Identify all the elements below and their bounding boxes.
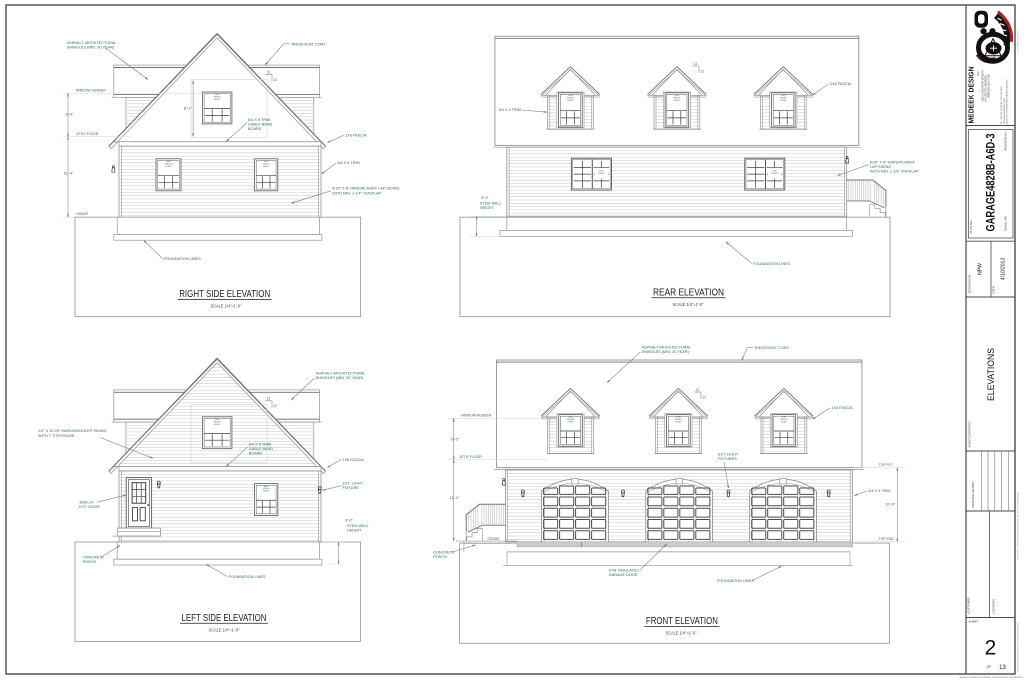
svg-text:GABLE BAND: GABLE BAND bbox=[249, 447, 274, 451]
svg-text:CONCRETE: CONCRETE bbox=[433, 551, 455, 555]
svg-text:FOUNDATION LINES: FOUNDATION LINES bbox=[229, 575, 266, 579]
svg-text:SHEET CONTENTS:: SHEET CONTENTS: bbox=[968, 421, 972, 447]
svg-text:6'-0": 6'-0" bbox=[451, 437, 460, 442]
svg-text:5/4 X 5 TRIM: 5/4 X 5 TRIM bbox=[249, 443, 271, 447]
svg-text:FOUNDATION LINES: FOUNDATION LINES bbox=[164, 257, 201, 261]
svg-text:HUNG: HUNG bbox=[780, 100, 786, 102]
svg-text:FRONT ELEVATION: FRONT ELEVATION bbox=[646, 616, 718, 627]
svg-text:HUNG: HUNG bbox=[674, 100, 680, 102]
svg-text:FIXTURE: FIXTURE bbox=[343, 486, 360, 490]
svg-text:PORCH: PORCH bbox=[83, 560, 97, 564]
svg-text:3'-0": 3'-0" bbox=[345, 517, 354, 522]
svg-text:6'-0": 6'-0" bbox=[66, 111, 75, 116]
svg-text:8'-1": 8'-1" bbox=[184, 105, 193, 110]
svg-text:FOUNDATION LINES: FOUNDATION LINES bbox=[753, 262, 790, 266]
svg-text:SCALE 1/4"=1'-0": SCALE 1/4"=1'-0" bbox=[209, 627, 240, 632]
svg-text:PH: 425-741-5555 FAX: 425-741: PH: 425-741-5555 FAX: 425-741-5556 bbox=[1000, 86, 1003, 124]
svg-text:BOARD: BOARD bbox=[248, 127, 262, 131]
svg-text:2: 2 bbox=[985, 637, 997, 660]
svg-text:EXT. LIGHT: EXT. LIGHT bbox=[718, 453, 739, 457]
svg-text:12: 12 bbox=[273, 404, 277, 408]
svg-text:HUNG: HUNG bbox=[567, 100, 573, 102]
svg-text:SCALE: NR: SCALE: NR bbox=[1004, 216, 1008, 231]
svg-text:SCALE 1/4"=1'-0": SCALE 1/4"=1'-0" bbox=[211, 304, 242, 309]
svg-text:FIXTURES: FIXTURES bbox=[718, 457, 737, 461]
svg-text:STEM WALL: STEM WALL bbox=[347, 524, 369, 528]
svg-text:GARAGE DOOR: GARAGE DOOR bbox=[609, 573, 638, 577]
svg-text:WWW.MEDEEK.COM: WWW.MEDEEK.COM bbox=[988, 74, 991, 98]
svg-text:HEIGHT: HEIGHT bbox=[347, 528, 362, 532]
svg-text:EXT. LIGHT: EXT. LIGHT bbox=[343, 481, 364, 485]
svg-text:3068 LH: 3068 LH bbox=[79, 501, 94, 505]
svg-text:RIDGEVENT CONT.: RIDGEVENT CONT. bbox=[292, 42, 327, 46]
svg-text:SHINGLES (MIN. 30 YEAR): SHINGLES (MIN. 30 YEAR) bbox=[642, 350, 690, 354]
svg-text:3'-0": 3'-0" bbox=[481, 195, 490, 200]
svg-text:REVISION: A-1: REVISION: A-1 bbox=[1004, 131, 1008, 151]
svg-text:RIDGEVENT CONT.: RIDGEVENT CONT. bbox=[755, 346, 790, 350]
svg-text:HUNG: HUNG bbox=[263, 166, 269, 168]
svg-text:SHEET: SHEET bbox=[969, 620, 979, 624]
svg-text:COPYRIGHT 2013 MEDEEK DESIGN I: COPYRIGHT 2013 MEDEEK DESIGN INC. ALL RI… bbox=[1016, 492, 1019, 560]
svg-text:SLIDER: SLIDER bbox=[598, 173, 605, 175]
svg-text:12: 12 bbox=[273, 78, 277, 82]
svg-text:1X6 FASCIA: 1X6 FASCIA bbox=[831, 406, 853, 410]
svg-text:9'X8' INSULATED: 9'X8' INSULATED bbox=[609, 569, 640, 573]
svg-text:12: 12 bbox=[267, 397, 271, 401]
svg-text:SLIDER: SLIDER bbox=[771, 173, 778, 175]
svg-text:11'-4": 11'-4" bbox=[449, 495, 459, 500]
svg-text:GABLE BAND: GABLE BAND bbox=[248, 123, 273, 127]
svg-text:ASPHALT ARCHITECTURAL: ASPHALT ARCHITECTURAL bbox=[67, 41, 117, 45]
svg-text:ASPHALT ARCHITECTURAL: ASPHALT ARCHITECTURAL bbox=[316, 372, 366, 376]
svg-text:1X6 FASCIA: 1X6 FASCIA bbox=[830, 82, 852, 86]
svg-text:5/4 X 4 TRIM: 5/4 X 4 TRIM bbox=[337, 161, 359, 165]
svg-text:CONCRETE: CONCRETE bbox=[83, 556, 105, 560]
svg-text:12: 12 bbox=[702, 395, 706, 399]
svg-text:LOCATION:: LOCATION: bbox=[992, 598, 996, 613]
svg-text:REVISION HISTORY:: REVISION HISTORY: bbox=[971, 480, 975, 507]
svg-text:DESIGNED BY:: DESIGNED BY: bbox=[968, 274, 972, 294]
svg-text:HUNG: HUNG bbox=[214, 424, 220, 426]
svg-text:DATE:: DATE: bbox=[992, 285, 996, 293]
svg-text:ATTIC FLOOR: ATTIC FLOOR bbox=[76, 132, 99, 136]
svg-text:11'-4": 11'-4" bbox=[64, 170, 74, 175]
svg-text:PORCH: PORCH bbox=[433, 555, 447, 559]
svg-text:LEFT SIDE ELEVATION: LEFT SIDE ELEVATION bbox=[182, 613, 267, 624]
svg-text:HUNG: HUNG bbox=[263, 491, 269, 493]
svg-text:5/4 X 5 TRIM: 5/4 X 5 TRIM bbox=[248, 118, 270, 122]
svg-text:TOP PLT.: TOP PLT. bbox=[879, 463, 893, 467]
svg-text:MEDEEK DESIGN COPYRIGHT 201: MEDEEK DESIGN COPYRIGHT 2013 ALL RIGHTS … bbox=[959, 676, 1022, 679]
svg-text:WINDOW HEADER: WINDOW HEADER bbox=[76, 88, 107, 92]
svg-text:TOP FND.: TOP FND. bbox=[879, 537, 895, 541]
svg-text:ALL RIGHTS RESERVED MEDEEK DES: ALL RIGHTS RESERVED MEDEEK DESIGN bbox=[1006, 79, 1009, 124]
svg-text:12: 12 bbox=[267, 70, 271, 74]
svg-text:HUNG: HUNG bbox=[214, 99, 220, 101]
svg-text:ELEVATIONS: ELEVATIONS bbox=[986, 348, 996, 401]
svg-text:WINDOW HEADER: WINDOW HEADER bbox=[461, 414, 492, 418]
svg-text:GRADE: GRADE bbox=[488, 537, 501, 541]
svg-text:UNAUTHORIZED REPRODUCTION PROH: UNAUTHORIZED REPRODUCTION PROHIBITED bbox=[1016, 622, 1019, 672]
svg-text:HUNG: HUNG bbox=[166, 166, 172, 168]
svg-text:ASPHALT ARCHITECTURAL: ASPHALT ARCHITECTURAL bbox=[642, 345, 692, 349]
svg-text:STEM WALL: STEM WALL bbox=[480, 202, 502, 206]
svg-text:RIGHT SIDE ELEVATION: RIGHT SIDE ELEVATION bbox=[179, 289, 270, 300]
svg-text:GARAGE4828B-A6D-3: GARAGE4828B-A6D-3 bbox=[984, 133, 998, 231]
svg-text:10'-0": 10'-0" bbox=[885, 502, 896, 507]
svg-text:REAR ELEVATION: REAR ELEVATION bbox=[653, 287, 724, 298]
svg-text:12: 12 bbox=[694, 62, 698, 66]
svg-text:5/4 X 4 TRIM: 5/4 X 4 TRIM bbox=[499, 108, 521, 112]
svg-text:WITH MIN. 1-1/4" OVERLAP: WITH MIN. 1-1/4" OVERLAP bbox=[870, 170, 919, 174]
svg-text:HUNG: HUNG bbox=[675, 422, 681, 424]
svg-text:5/16" X 6" HARDIPLANK® LAP SID: 5/16" X 6" HARDIPLANK® LAP SIDING bbox=[332, 187, 399, 191]
svg-text:PLOT DATE 4/10/2013: PLOT DATE 4/10/2013 bbox=[1016, 29, 1019, 52]
svg-text:5/4 X 4 TRIM: 5/4 X 4 TRIM bbox=[868, 489, 890, 493]
svg-text:1X6 FASCIA: 1X6 FASCIA bbox=[345, 134, 367, 138]
svg-text:13: 13 bbox=[999, 665, 1006, 671]
svg-text:1X6 FASCIA: 1X6 FASCIA bbox=[343, 458, 365, 462]
svg-text:INC.: INC. bbox=[976, 70, 980, 75]
svg-text:4/10/2013: 4/10/2013 bbox=[1001, 258, 1007, 280]
svg-text:5/16" X 6" HARDIPLANK®: 5/16" X 6" HARDIPLANK® bbox=[870, 160, 915, 164]
svg-text:SCALE 1/4"=1'-0": SCALE 1/4"=1'-0" bbox=[666, 630, 697, 635]
svg-text:PLAN NO.: PLAN NO. bbox=[969, 219, 973, 233]
svg-text:MEDEEK DESIGN: MEDEEK DESIGN bbox=[967, 67, 976, 124]
svg-text:LAP SIDING: LAP SIDING bbox=[870, 165, 891, 169]
svg-text:CUSTOMER:: CUSTOMER: bbox=[967, 597, 971, 614]
svg-text:FOUNDATION LINES: FOUNDATION LINES bbox=[717, 579, 754, 583]
svg-text:NPW: NPW bbox=[978, 263, 984, 275]
svg-text:SHINGLES (MIN. 30 YEAR): SHINGLES (MIN. 30 YEAR) bbox=[67, 45, 115, 49]
svg-text:HUNG: HUNG bbox=[568, 422, 574, 424]
svg-text:SCALE 1/4"=1'-0": SCALE 1/4"=1'-0" bbox=[673, 302, 704, 307]
svg-text:OF: OF bbox=[987, 665, 992, 669]
svg-text:SHINGLES (MIN. 30 YEAR): SHINGLES (MIN. 30 YEAR) bbox=[316, 376, 364, 380]
svg-text:HEIGHT: HEIGHT bbox=[480, 206, 495, 210]
svg-text:12: 12 bbox=[700, 69, 704, 73]
svg-text:WITH MIN. 1-1/4" OVERLAP: WITH MIN. 1-1/4" OVERLAP bbox=[332, 191, 381, 195]
svg-text:ATTIC FLOOR: ATTIC FLOOR bbox=[460, 455, 483, 459]
svg-text:DESIGN@MEDEEK.COM: DESIGN@MEDEEK.COM bbox=[1004, 98, 1006, 124]
svg-text:WITH 7" EXPOSURE: WITH 7" EXPOSURE bbox=[38, 434, 75, 438]
svg-text:12: 12 bbox=[696, 388, 700, 392]
svg-text:GRADE: GRADE bbox=[76, 212, 89, 216]
svg-text:1/4" X 15.25" HARDISHINGLE® SI: 1/4" X 15.25" HARDISHINGLE® SIDING bbox=[38, 429, 107, 433]
svg-text:HUNG: HUNG bbox=[781, 422, 787, 424]
svg-text:EXT. DOOR: EXT. DOOR bbox=[79, 505, 100, 509]
svg-text:BOARD: BOARD bbox=[249, 452, 263, 456]
